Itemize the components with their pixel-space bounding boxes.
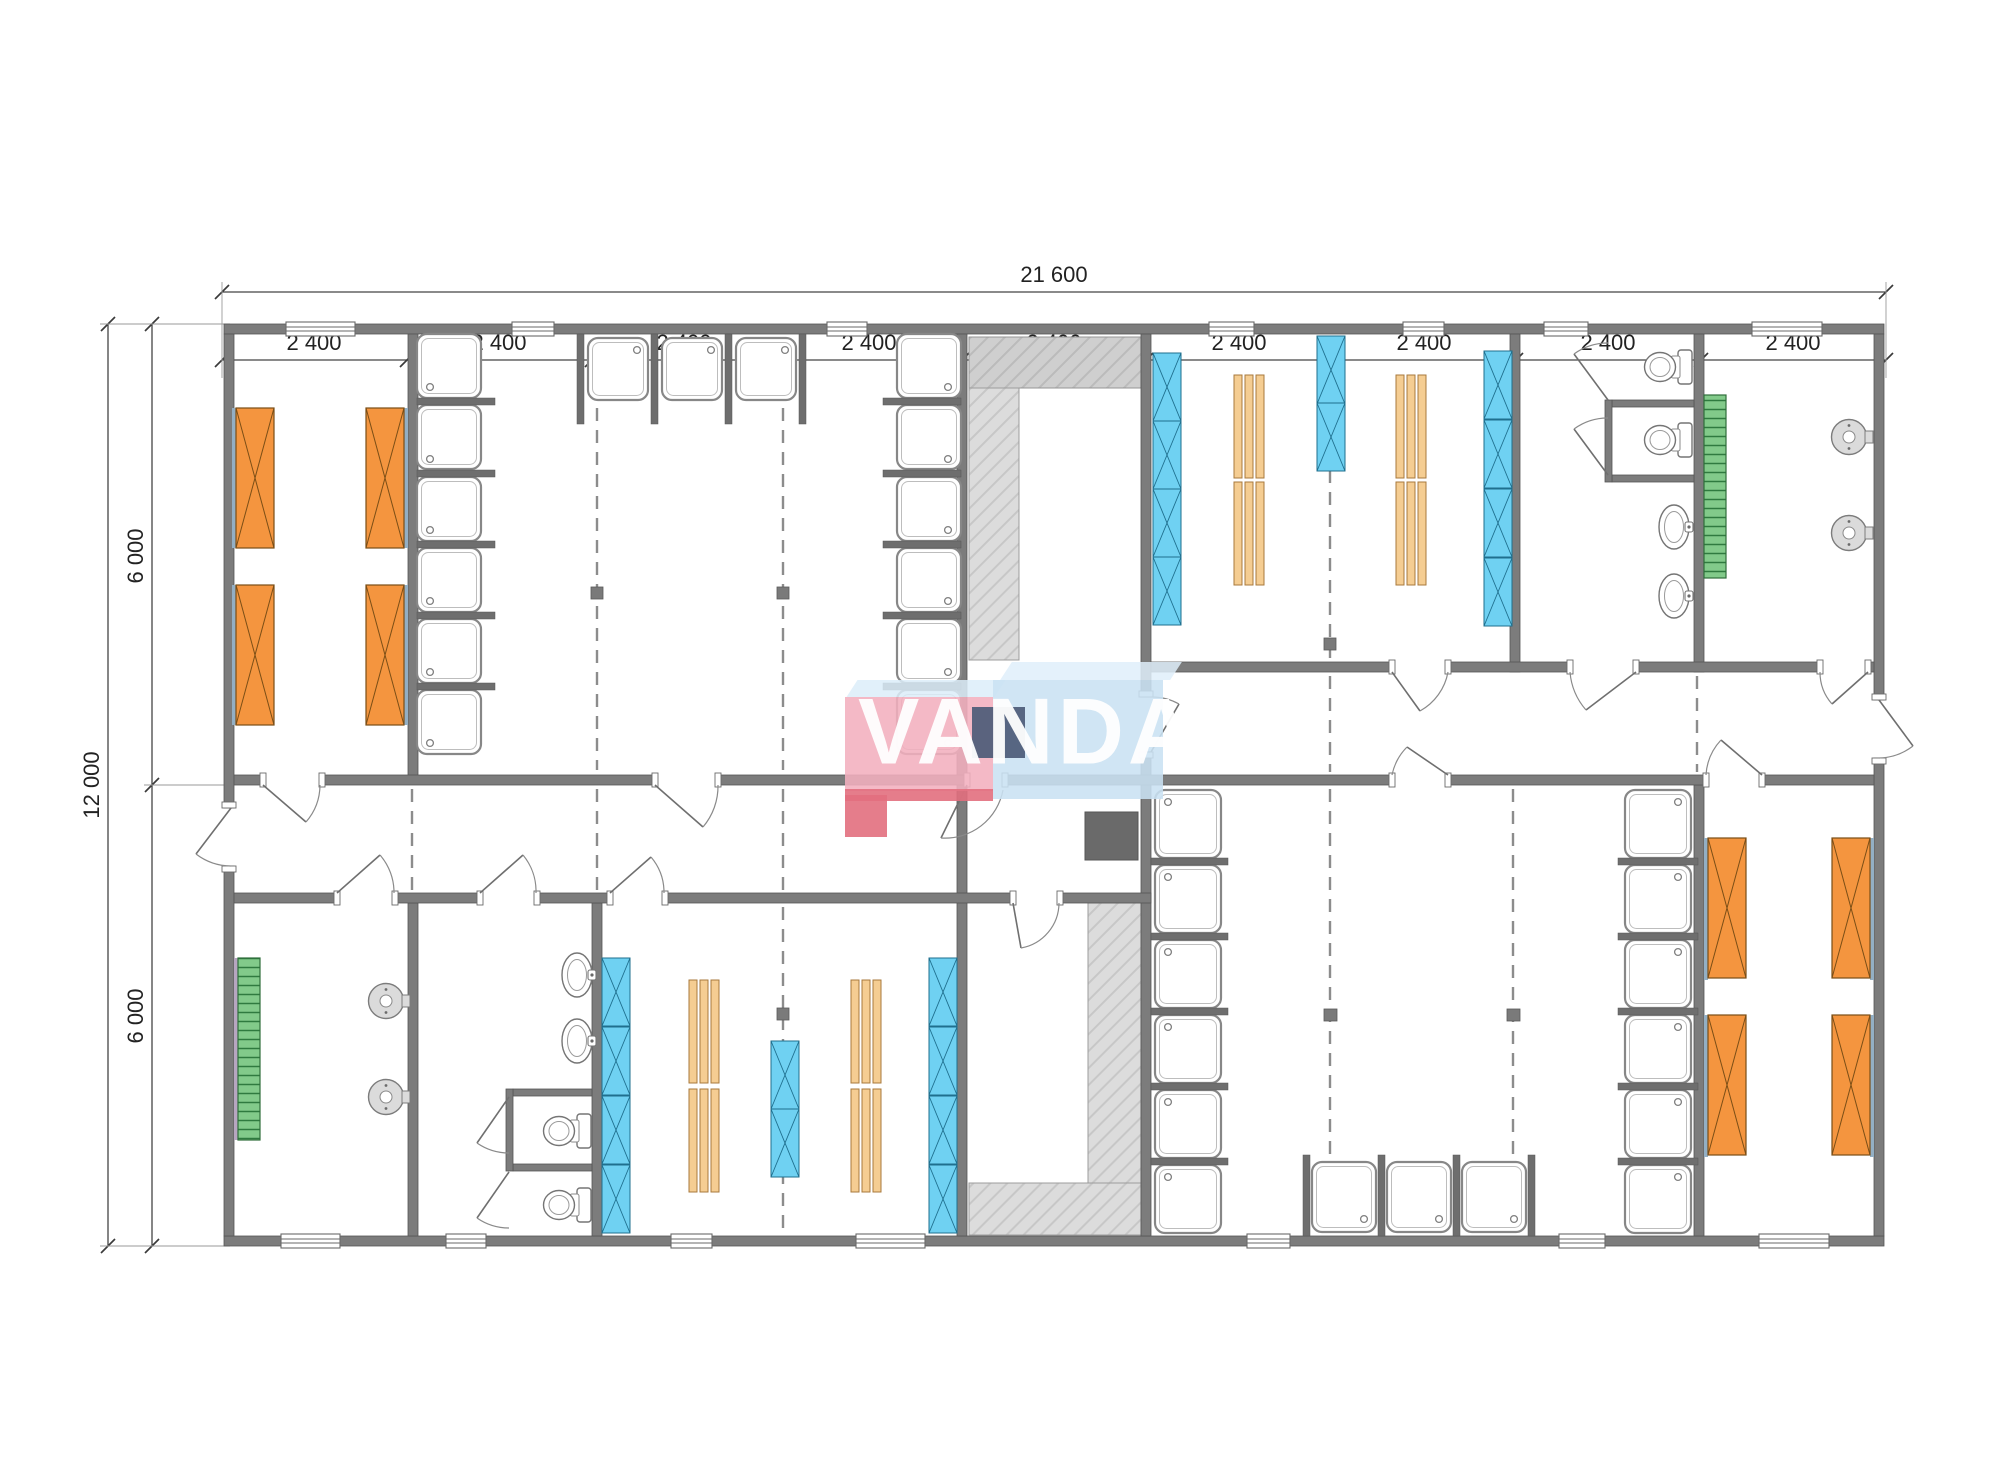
structural-column	[1324, 638, 1336, 650]
door	[655, 785, 718, 827]
structural-column	[777, 1008, 789, 1020]
interior-wall	[592, 903, 602, 1236]
wardrobe-unit	[602, 1165, 630, 1233]
washbasin	[562, 953, 596, 997]
bunk-bed	[1832, 838, 1870, 978]
exterior-wall-west	[224, 866, 234, 1236]
wardrobe-unit	[602, 1096, 630, 1164]
window	[1544, 322, 1588, 336]
interior-wall	[1141, 334, 1151, 697]
bunk-beds-northwest	[232, 408, 408, 725]
shower-row-north	[588, 338, 796, 400]
wardrobe-unit	[929, 1165, 957, 1233]
bunk-beds-southeast	[1704, 838, 1874, 1157]
window	[1247, 1234, 1290, 1248]
window	[1759, 1234, 1829, 1248]
washbasin	[1659, 505, 1693, 549]
round-washbasin	[1832, 420, 1874, 455]
wardrobe-unit	[602, 1027, 630, 1095]
bench	[1396, 482, 1426, 585]
round-washbasin	[1832, 516, 1874, 551]
bunk-bed	[236, 585, 274, 725]
structural-column	[777, 587, 789, 599]
bench	[851, 1089, 881, 1192]
toilet	[544, 1188, 592, 1222]
toilet	[1645, 423, 1693, 457]
exterior-door	[196, 808, 231, 866]
bench	[851, 980, 881, 1083]
exterior-wall-north	[224, 324, 1884, 334]
door	[941, 785, 1003, 838]
window	[1559, 1234, 1605, 1248]
window	[1403, 322, 1444, 336]
door	[1392, 747, 1448, 775]
exterior-door	[1879, 700, 1913, 758]
bunk-bed	[1708, 1015, 1746, 1155]
door	[1706, 740, 1762, 775]
wardrobe-unit	[929, 1096, 957, 1164]
bunk-bed	[366, 408, 404, 548]
shower-row-south	[1303, 1155, 1535, 1236]
ramp-hatch	[969, 1183, 1141, 1235]
dimension-total-height: 12 000	[79, 751, 104, 818]
window	[1752, 322, 1822, 336]
window	[1209, 322, 1254, 336]
bench	[689, 1089, 719, 1192]
wardrobe-unit	[1153, 489, 1181, 557]
wardrobe-unit	[1484, 351, 1512, 419]
dimension-half-height: 6 000	[123, 988, 148, 1043]
exterior-wall-west	[224, 334, 234, 808]
door	[1392, 672, 1448, 711]
structural-column	[1507, 1009, 1520, 1021]
wardrobe-unit	[771, 1109, 799, 1177]
ramp-hatch	[969, 388, 1019, 660]
toilet	[544, 1114, 592, 1148]
bench	[1234, 375, 1264, 478]
door	[1151, 697, 1179, 752]
round-washbasin	[369, 1080, 411, 1115]
exterior-wall-east	[1874, 334, 1884, 700]
door	[1570, 672, 1636, 710]
ramp-hatch	[1088, 903, 1141, 1183]
washbasin	[1659, 574, 1693, 618]
floor-plan-page: 21 600 2 400 2 400 2 400 2 400 2 400 2 4…	[0, 0, 2000, 1457]
window	[512, 322, 554, 336]
window	[281, 1234, 340, 1248]
bunk-bed	[1832, 1015, 1870, 1155]
cubicle-door	[1574, 418, 1608, 475]
interior-wall	[408, 903, 418, 1236]
wardrobe-unit	[1484, 558, 1512, 626]
dimension-half-height: 6 000	[123, 528, 148, 583]
shower-column-west	[417, 334, 495, 754]
dimension-total-width: 21 600	[1020, 262, 1087, 287]
interior-wall	[1694, 334, 1704, 672]
window	[446, 1234, 486, 1248]
bench	[689, 980, 719, 1083]
wardrobe-unit	[1484, 489, 1512, 557]
structural-columns	[591, 587, 1520, 1021]
exterior-wall-east	[1874, 758, 1884, 1236]
wardrobe-unit	[1153, 353, 1181, 421]
cubicle-door	[477, 1172, 509, 1228]
structural-column	[591, 587, 603, 599]
interior-wall	[1141, 752, 1151, 1236]
toilet	[1645, 350, 1693, 384]
window	[671, 1234, 712, 1248]
wardrobe-unit	[602, 958, 630, 1026]
wardrobe-unit	[1153, 421, 1181, 489]
window	[827, 322, 867, 336]
window	[286, 322, 355, 336]
door	[337, 855, 394, 893]
bunk-bed	[1708, 838, 1746, 978]
shower-column-mid-south	[1151, 790, 1228, 1233]
bench	[1234, 482, 1264, 585]
window	[856, 1234, 925, 1248]
round-washbasin	[369, 984, 411, 1019]
door	[610, 857, 664, 893]
ramp-hatch	[969, 337, 1141, 388]
door	[1820, 672, 1868, 704]
wardrobe-unit	[771, 1041, 799, 1109]
washbasin	[562, 1019, 596, 1063]
wardrobe-unit	[1317, 403, 1345, 471]
structural-column	[1324, 1009, 1337, 1021]
door	[480, 855, 536, 893]
cubicle-door	[477, 1097, 509, 1153]
door	[263, 785, 320, 822]
service-shaft	[1085, 812, 1138, 860]
floor-plan-drawing: 21 600 2 400 2 400 2 400 2 400 2 400 2 4…	[0, 0, 2000, 1457]
wardrobe-unit	[1484, 420, 1512, 488]
green-bench	[238, 958, 260, 1140]
bunk-bed	[366, 585, 404, 725]
bench	[1396, 375, 1426, 478]
wardrobe-unit	[929, 1027, 957, 1095]
green-bench	[1704, 395, 1726, 578]
entry-ramp-areas	[969, 337, 1141, 1235]
wardrobe-unit	[929, 958, 957, 1026]
wardrobe-unit	[1317, 336, 1345, 404]
door	[1013, 903, 1059, 948]
wardrobe-unit	[1153, 557, 1181, 625]
shower-column-east-south	[1618, 790, 1698, 1233]
bunk-bed	[236, 408, 274, 548]
shower-column-mid-north	[883, 334, 961, 754]
